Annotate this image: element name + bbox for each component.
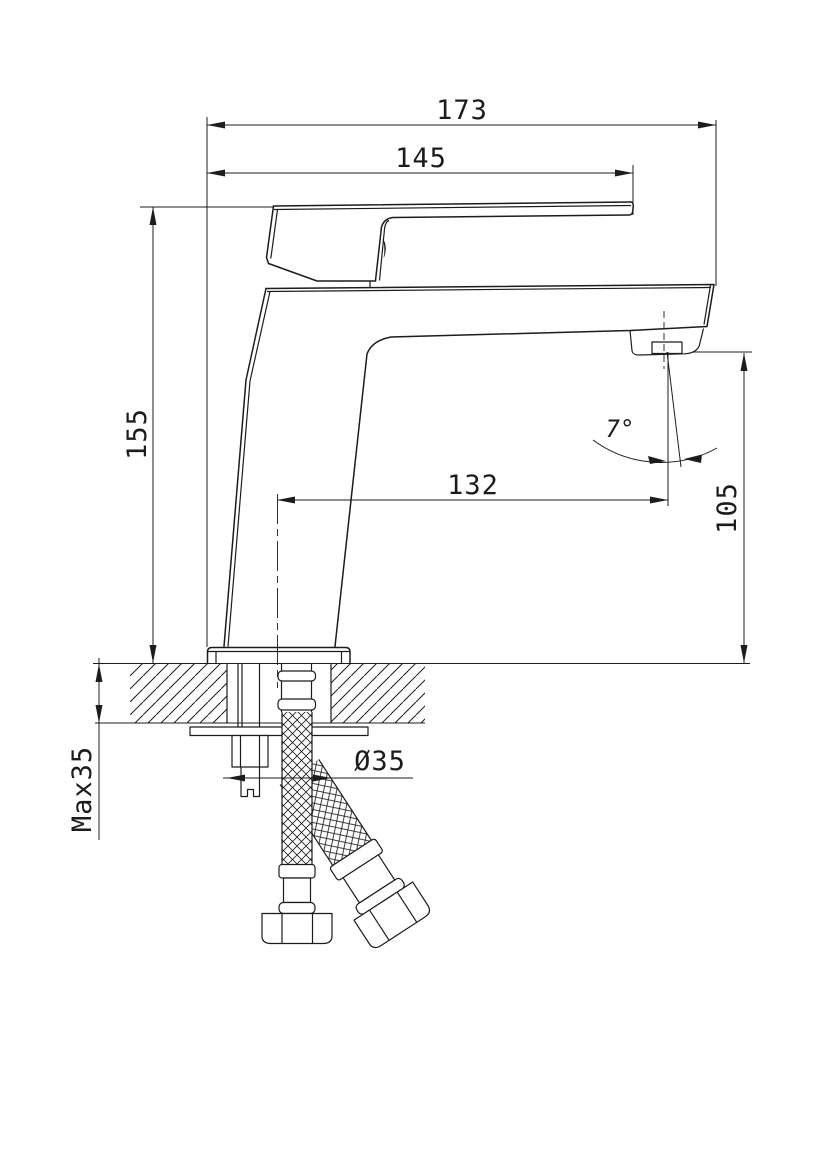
hose-braid (282, 712, 312, 865)
arrowhead (741, 645, 748, 663)
dim-text-155: 155 (122, 408, 153, 460)
dim-text-173: 173 (436, 95, 488, 126)
drawing-page: 173 145 155 132 105 7° (0, 0, 826, 1169)
dim-text-132: 132 (447, 470, 499, 501)
counter-hatch-left (130, 664, 227, 723)
dimension-spout-reach: 132 (277, 470, 668, 504)
arrowhead (650, 497, 668, 504)
flange-washer (190, 727, 368, 736)
arrowhead (150, 645, 157, 663)
spout-body (224, 285, 714, 647)
spout-aerator (630, 311, 704, 369)
hose-tube (284, 878, 311, 903)
hose-oring-band (278, 671, 316, 681)
angle-leg-tilted (667, 352, 681, 467)
dimension-max-thickness: Max35 (67, 658, 103, 840)
arrowhead (207, 170, 225, 177)
dim-text-7deg: 7° (606, 415, 635, 443)
dim-text-max35: Max35 (67, 746, 98, 832)
faucet-outline (208, 202, 715, 688)
counter-hatch-right (331, 664, 425, 723)
dim-text-105: 105 (712, 482, 743, 534)
arrowhead (96, 705, 103, 723)
arrowhead (684, 455, 702, 464)
base-plate (208, 648, 351, 664)
arrowhead (207, 122, 225, 129)
dim-text-145: 145 (395, 143, 447, 174)
dimension-spout-height: 105 (693, 352, 752, 663)
mounting-stud-upper (238, 664, 260, 728)
arrowhead (150, 207, 157, 225)
faucet-technical-drawing: 173 145 155 132 105 7° (0, 0, 826, 1169)
counter-cross-section (93, 664, 750, 724)
hose-hex-nut (262, 914, 332, 944)
dimension-spout-angle: 7° (593, 352, 717, 506)
dimension-overall-width: 173 (207, 95, 716, 647)
arrowhead (615, 170, 633, 177)
dimension-total-height: 155 (122, 207, 274, 663)
handle-lever (267, 202, 634, 288)
hose-ferrule (279, 865, 315, 879)
mounting-stud-end (241, 767, 260, 797)
arrowhead (741, 353, 748, 371)
hose-oring-band (278, 699, 316, 710)
dim-text-d35: Ø35 (354, 746, 406, 777)
arrowhead (96, 664, 103, 682)
arrowhead (277, 497, 295, 504)
arrowhead (227, 775, 245, 782)
hose-collar (279, 903, 315, 914)
arrowhead (698, 122, 716, 129)
clamp-nut (232, 736, 268, 768)
